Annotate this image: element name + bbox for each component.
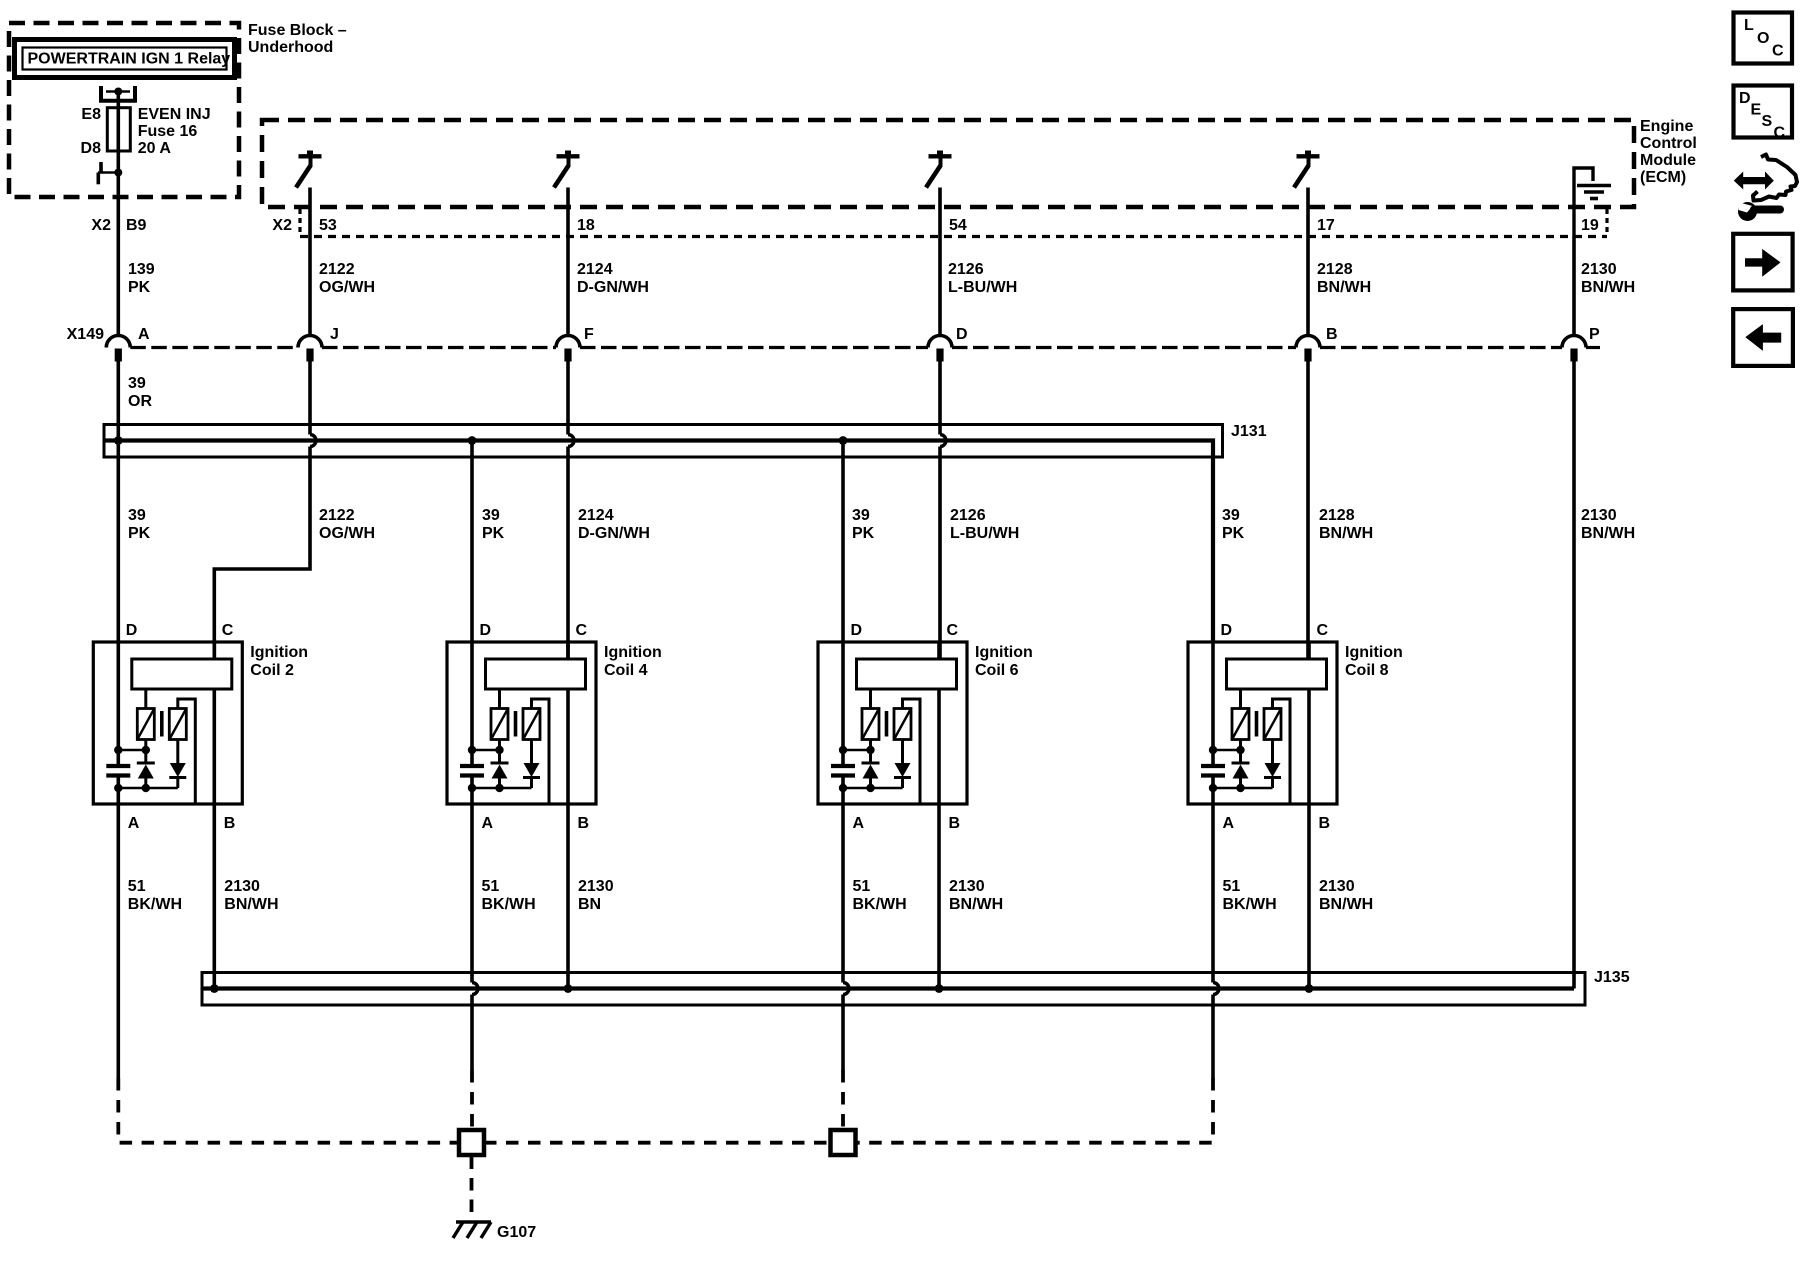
svg-text:2128: 2128 xyxy=(1319,507,1355,524)
svg-text:2130: 2130 xyxy=(1581,507,1617,524)
svg-text:B9: B9 xyxy=(126,217,147,234)
svg-text:PK: PK xyxy=(852,525,875,542)
svg-text:BK/WH: BK/WH xyxy=(853,896,907,913)
svg-text:D: D xyxy=(126,622,138,639)
svg-text:20 A: 20 A xyxy=(138,140,172,157)
svg-text:B: B xyxy=(1319,815,1331,832)
svg-text:OR: OR xyxy=(128,393,152,410)
svg-text:O: O xyxy=(1757,30,1769,47)
svg-text:2130: 2130 xyxy=(578,878,614,895)
svg-text:Engine: Engine xyxy=(1640,118,1693,135)
svg-text:X149: X149 xyxy=(67,326,104,343)
svg-text:J131: J131 xyxy=(1231,423,1267,440)
svg-text:51: 51 xyxy=(482,878,500,895)
svg-text:19: 19 xyxy=(1581,217,1599,234)
svg-text:PK: PK xyxy=(1222,525,1245,542)
svg-text:D: D xyxy=(956,326,968,343)
svg-text:A: A xyxy=(138,326,150,343)
svg-text:B: B xyxy=(578,815,590,832)
svg-text:A: A xyxy=(482,815,494,832)
svg-text:Module: Module xyxy=(1640,152,1696,169)
svg-text:53: 53 xyxy=(319,217,337,234)
svg-text:EVEN INJ: EVEN INJ xyxy=(138,106,211,123)
svg-text:Control: Control xyxy=(1640,135,1697,152)
svg-text:PK: PK xyxy=(482,525,505,542)
svg-text:Ignition: Ignition xyxy=(975,644,1033,661)
svg-text:2124: 2124 xyxy=(577,261,613,278)
svg-text:39: 39 xyxy=(852,507,870,524)
svg-text:C: C xyxy=(1774,125,1786,142)
svg-text:PK: PK xyxy=(128,525,151,542)
svg-text:BN/WH: BN/WH xyxy=(1317,279,1371,296)
svg-text:Fuse Block –: Fuse Block – xyxy=(248,22,347,39)
svg-text:51: 51 xyxy=(1223,878,1241,895)
svg-text:J: J xyxy=(330,326,339,343)
svg-text:(ECM): (ECM) xyxy=(1640,169,1686,186)
svg-text:D: D xyxy=(1739,90,1751,107)
svg-text:A: A xyxy=(128,815,140,832)
svg-text:Coil 4: Coil 4 xyxy=(604,662,648,679)
svg-text:B: B xyxy=(949,815,961,832)
svg-text:Fuse 16: Fuse 16 xyxy=(138,123,198,140)
svg-text:D8: D8 xyxy=(81,140,102,157)
svg-text:18: 18 xyxy=(577,217,595,234)
svg-text:2130: 2130 xyxy=(1581,261,1617,278)
svg-text:X2: X2 xyxy=(91,217,111,234)
svg-text:Underhood: Underhood xyxy=(248,39,333,56)
svg-text:Ignition: Ignition xyxy=(250,644,308,661)
svg-text:OG/WH: OG/WH xyxy=(319,525,375,542)
svg-text:L: L xyxy=(1744,17,1754,34)
svg-text:BK/WH: BK/WH xyxy=(128,896,182,913)
svg-text:OG/WH: OG/WH xyxy=(319,279,375,296)
svg-text:54: 54 xyxy=(949,217,967,234)
svg-text:F: F xyxy=(584,326,594,343)
svg-text:Ignition: Ignition xyxy=(1345,644,1403,661)
svg-text:B: B xyxy=(224,815,236,832)
svg-text:BN/WH: BN/WH xyxy=(1319,896,1373,913)
svg-text:P: P xyxy=(1589,326,1600,343)
svg-text:D-GN/WH: D-GN/WH xyxy=(577,279,649,296)
svg-text:C: C xyxy=(1317,622,1329,639)
svg-text:BK/WH: BK/WH xyxy=(1223,896,1277,913)
svg-text:2124: 2124 xyxy=(578,507,614,524)
svg-text:39: 39 xyxy=(482,507,500,524)
svg-text:POWERTRAIN IGN 1 Relay: POWERTRAIN IGN 1 Relay xyxy=(28,51,231,68)
svg-text:51: 51 xyxy=(853,878,871,895)
svg-text:E: E xyxy=(1751,102,1762,119)
svg-text:L-BU/WH: L-BU/WH xyxy=(948,279,1017,296)
svg-text:C: C xyxy=(222,622,234,639)
svg-text:D: D xyxy=(851,622,863,639)
svg-text:PK: PK xyxy=(128,279,151,296)
svg-text:BN/WH: BN/WH xyxy=(1581,279,1635,296)
svg-text:Coil 2: Coil 2 xyxy=(250,662,294,679)
svg-text:D: D xyxy=(480,622,492,639)
svg-text:2130: 2130 xyxy=(949,878,985,895)
svg-text:2130: 2130 xyxy=(224,878,260,895)
svg-text:BN/WH: BN/WH xyxy=(949,896,1003,913)
svg-text:51: 51 xyxy=(128,878,146,895)
svg-text:BN: BN xyxy=(578,896,601,913)
svg-text:L-BU/WH: L-BU/WH xyxy=(950,525,1019,542)
svg-text:2122: 2122 xyxy=(319,507,355,524)
svg-text:BN/WH: BN/WH xyxy=(1319,525,1373,542)
svg-text:A: A xyxy=(1223,815,1235,832)
svg-text:2130: 2130 xyxy=(1319,878,1355,895)
svg-text:2122: 2122 xyxy=(319,261,355,278)
svg-text:Ignition: Ignition xyxy=(604,644,662,661)
svg-text:2126: 2126 xyxy=(950,507,986,524)
svg-text:C: C xyxy=(576,622,588,639)
svg-text:G107: G107 xyxy=(497,1224,536,1241)
svg-text:BN/WH: BN/WH xyxy=(224,896,278,913)
svg-text:BK/WH: BK/WH xyxy=(482,896,536,913)
svg-text:D-GN/WH: D-GN/WH xyxy=(578,525,650,542)
svg-text:D: D xyxy=(1221,622,1233,639)
svg-text:39: 39 xyxy=(1222,507,1240,524)
svg-text:Coil 8: Coil 8 xyxy=(1345,662,1389,679)
svg-text:B: B xyxy=(1326,326,1338,343)
svg-text:BN/WH: BN/WH xyxy=(1581,525,1635,542)
svg-text:2126: 2126 xyxy=(948,261,984,278)
svg-text:X2: X2 xyxy=(272,217,292,234)
svg-text:S: S xyxy=(1762,113,1773,130)
svg-text:J135: J135 xyxy=(1594,969,1630,986)
svg-text:2128: 2128 xyxy=(1317,261,1353,278)
svg-text:C: C xyxy=(947,622,959,639)
svg-text:Coil 6: Coil 6 xyxy=(975,662,1019,679)
svg-text:139: 139 xyxy=(128,261,155,278)
svg-text:39: 39 xyxy=(128,507,146,524)
svg-text:E8: E8 xyxy=(81,106,101,123)
svg-text:A: A xyxy=(853,815,865,832)
svg-text:C: C xyxy=(1772,43,1784,60)
svg-text:39: 39 xyxy=(128,375,146,392)
svg-text:17: 17 xyxy=(1317,217,1335,234)
